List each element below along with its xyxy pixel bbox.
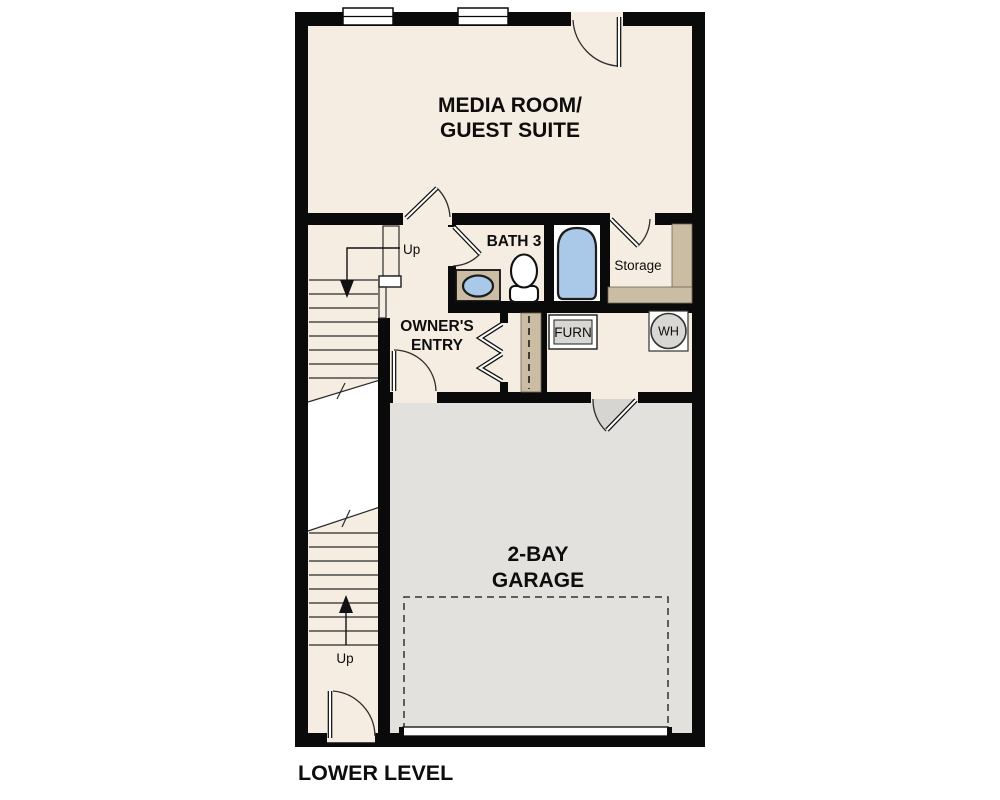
bathtub [554, 225, 600, 301]
bath-label: BATH 3 [487, 233, 542, 250]
owners-entry-label-line2: ENTRY [411, 337, 464, 354]
floor-plan-drawing: MEDIA ROOM/ GUEST SUITE BATH 3 Storage O… [0, 0, 1000, 800]
media-room-label-line2: GUEST SUITE [440, 119, 580, 142]
wall-outer-right [692, 12, 705, 747]
opening-garage-entry-door [393, 392, 437, 403]
floor-plan-page: MEDIA ROOM/ GUEST SUITE BATH 3 Storage O… [0, 0, 1000, 800]
opening-exterior-stair-door [327, 733, 375, 743]
toilet [510, 255, 538, 303]
opening-entry-door [571, 12, 623, 26]
opening-bath-door [447, 227, 457, 266]
wall-closet-post-bottom [500, 382, 508, 392]
sink-vanity [456, 270, 500, 301]
sink-basin [463, 276, 493, 297]
wall-tub-left [544, 213, 554, 313]
water-heater-label: WH [658, 325, 679, 339]
furnace-label: FURN [554, 325, 592, 340]
garage-floor [390, 402, 692, 733]
garage-label-line2: GARAGE [492, 569, 584, 592]
window-1 [343, 8, 393, 25]
up-label-lower: Up [336, 651, 353, 666]
wall-outer-left [295, 12, 308, 747]
railing-newel [379, 276, 401, 287]
plan-title: LOWER LEVEL [298, 761, 453, 785]
owners-entry-label-line1: OWNER'S [400, 318, 473, 335]
garage-label-line1: 2-BAY [507, 543, 568, 566]
owners-closet [521, 313, 541, 392]
garage-door [399, 727, 672, 738]
up-label-upper: Up [403, 242, 420, 257]
media-room-label-line1: MEDIA ROOM/ [438, 94, 582, 117]
stairwell-void [308, 380, 380, 532]
wall-stair-right [378, 318, 390, 733]
wall-closet-post-top [500, 313, 508, 323]
closet-shelf [521, 313, 541, 392]
storage-label: Storage [614, 258, 661, 273]
wall-closet-right [541, 313, 547, 392]
window-2 [458, 8, 508, 25]
